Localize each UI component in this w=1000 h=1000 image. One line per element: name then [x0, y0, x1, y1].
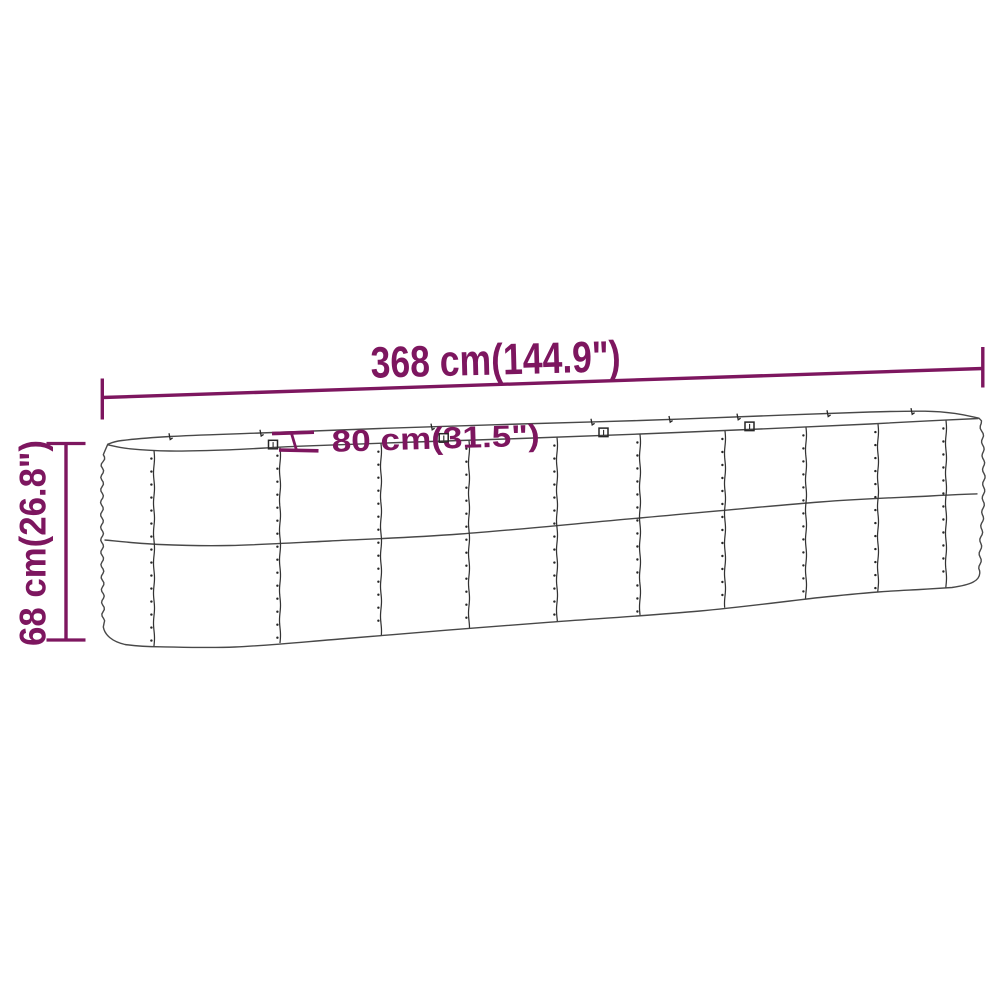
svg-text:68 cm(26.8"): 68 cm(26.8"): [13, 440, 54, 646]
svg-text:368 cm(144.9"): 368 cm(144.9"): [370, 332, 621, 388]
svg-text:80 cm(31.5"): 80 cm(31.5"): [331, 419, 540, 459]
